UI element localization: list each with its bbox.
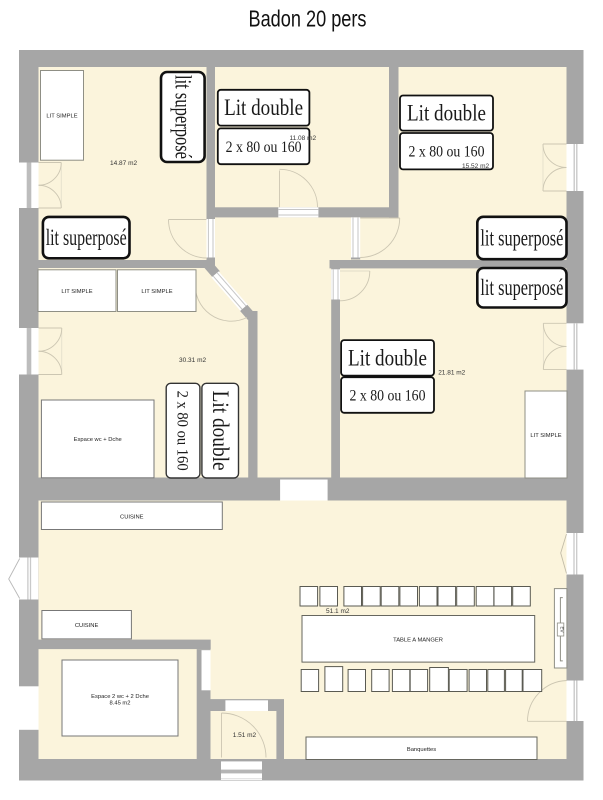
svg-text:Lit double: Lit double [224,95,303,120]
svg-text:14.87 m2: 14.87 m2 [110,160,137,167]
svg-text:LIT SIMPLE: LIT SIMPLE [530,433,561,439]
svg-text:30.31 m2: 30.31 m2 [179,357,206,364]
svg-text:lit superposé: lit superposé [480,225,563,250]
svg-text:15.52 m2: 15.52 m2 [462,163,489,170]
svg-text:CUISINE: CUISINE [75,623,99,629]
svg-text:51.1 m2: 51.1 m2 [326,608,350,615]
svg-text:CUISINE: CUISINE [120,515,144,521]
svg-text:Espace 2 wc + 2 Dche: Espace 2 wc + 2 Dche [91,694,149,700]
svg-text:Banquettes: Banquettes [407,747,436,753]
svg-text:lit superposé: lit superposé [480,275,563,300]
svg-text:11.08 m2: 11.08 m2 [290,135,317,142]
svg-text:TABLE A MANGER: TABLE A MANGER [393,638,443,644]
svg-text:LIT SIMPLE: LIT SIMPLE [141,289,172,295]
svg-text:2 x 80 ou 160: 2 x 80 ou 160 [409,144,485,161]
svg-text:2 x 80 ou 160: 2 x 80 ou 160 [350,388,426,405]
svg-text:LIT SIMPLE: LIT SIMPLE [61,289,92,295]
svg-text:21.81 m2: 21.81 m2 [438,370,465,377]
svg-text:LIT SIMPLE: LIT SIMPLE [46,114,77,120]
svg-text:EV: EV [560,626,565,632]
svg-text:1.51 m2: 1.51 m2 [233,732,257,739]
svg-text:Lit double: Lit double [348,345,427,370]
svg-text:8.45 m2: 8.45 m2 [110,701,131,707]
svg-text:Lit double: Lit double [407,101,486,126]
svg-text:lit superposé: lit superposé [170,75,195,159]
svg-text:Lit double: Lit double [208,391,233,471]
svg-text:lit superposé: lit superposé [46,225,127,250]
svg-text:Espace wc + Dche: Espace wc + Dche [74,437,122,443]
svg-text:Badon 20 pers: Badon 20 pers [249,6,367,32]
svg-text:2 x 80 ou 160: 2 x 80 ou 160 [174,391,191,471]
